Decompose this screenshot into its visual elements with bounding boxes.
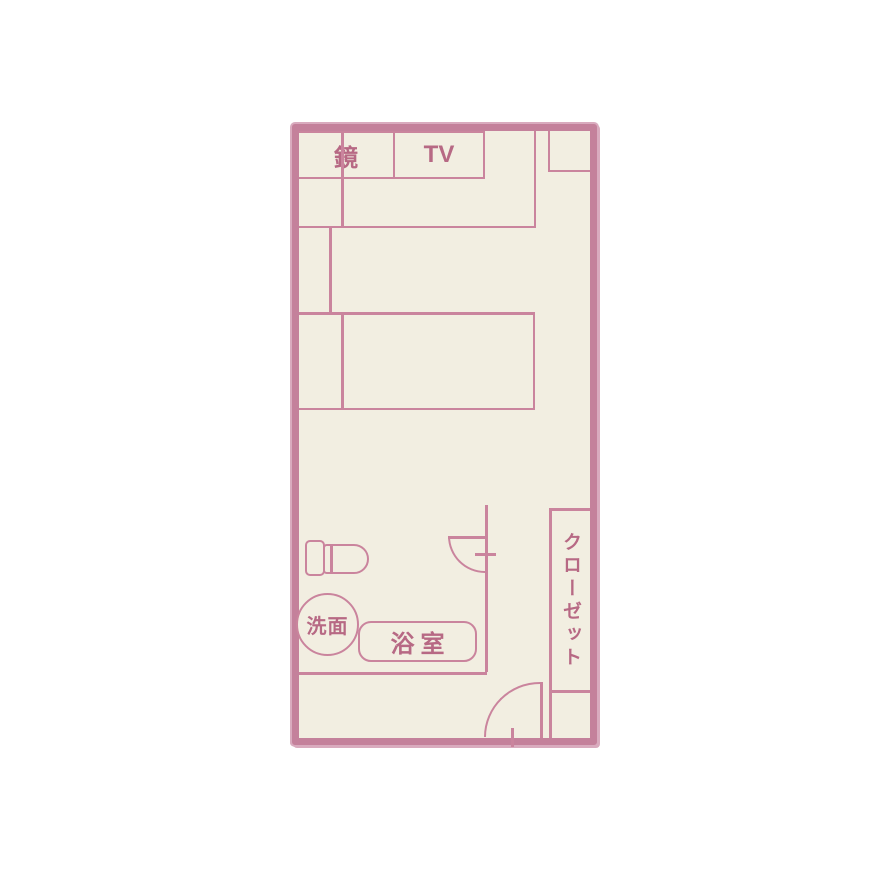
washbasin-label: 洗面 (307, 610, 349, 639)
bed-3 (299, 312, 535, 410)
bed-1 (299, 131, 536, 228)
entrance-door-tick (511, 728, 514, 747)
closet-label: クローゼット (551, 516, 590, 686)
bed-1-pillow-divider (341, 131, 344, 228)
closet-wall-top (549, 508, 590, 511)
toilet-tank-icon (305, 540, 325, 576)
washbasin-circle: 洗面 (296, 593, 359, 656)
washroom-wall-horizontal (299, 672, 487, 675)
bed-3-pillow-divider (341, 312, 344, 410)
bathroom-door-tick (475, 553, 496, 556)
floor-plan: 鏡 TV 洗面 浴室 クローゼット (292, 124, 597, 745)
entrance-door-leaf (540, 682, 543, 738)
bathroom-label: 浴室 (385, 624, 451, 659)
page: { "colors": { "background": "#ffffff", "… (0, 0, 889, 869)
closet-wall-bottom (549, 690, 590, 693)
bed-2-pillow-divider (329, 228, 332, 312)
corner-nook (548, 131, 590, 172)
toilet-seat-hinge-icon (330, 545, 333, 573)
bathroom-label-box: 浴室 (358, 621, 477, 662)
washroom-wall-vertical (485, 505, 488, 672)
